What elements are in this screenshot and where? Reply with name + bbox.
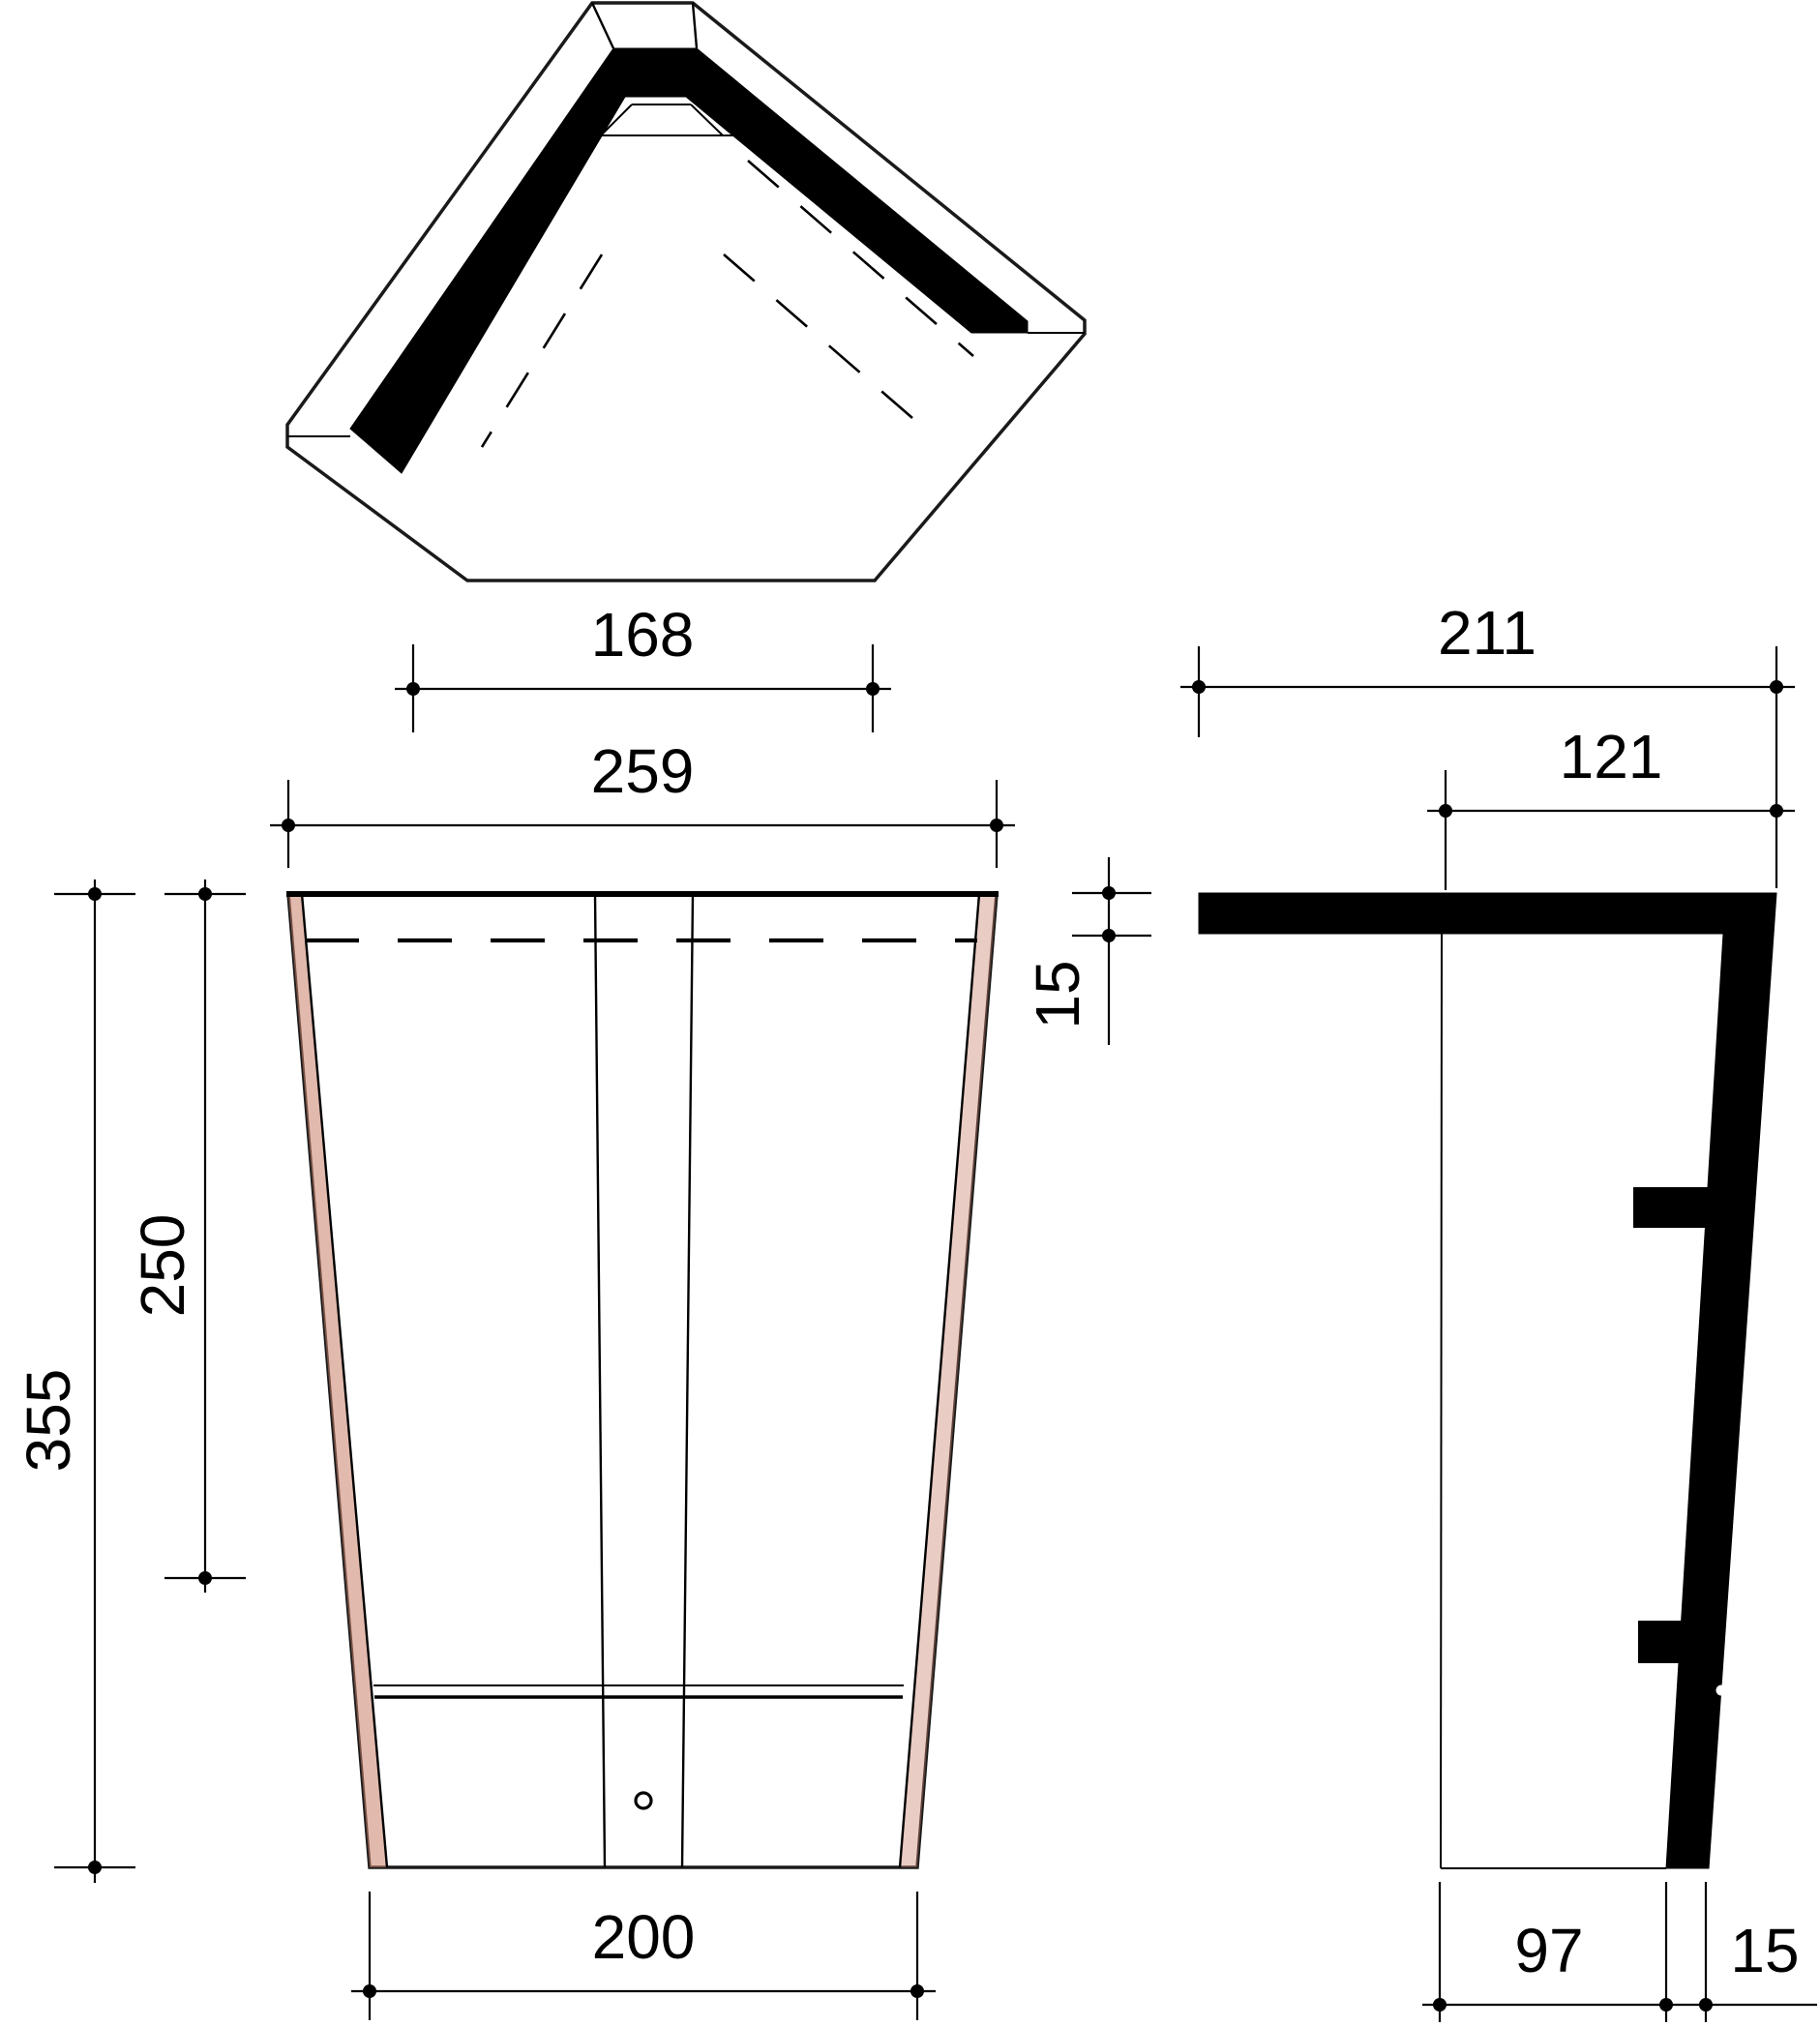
dim-211-dot-left [1192,680,1206,694]
dim-211-dot-right [1770,680,1783,694]
dim-200-label: 200 [592,1902,696,1972]
technical-drawing-page: 168 259 355 250 [0,0,1820,2027]
dim-97-dot-left [1433,1998,1447,2012]
dim-front-bottom-width: 200 [351,1892,936,2020]
dim-200-dot-right [910,1984,924,1998]
top-view-black-ridge-band [350,48,1028,473]
front-view-left-inner-line [302,894,387,1867]
side-view-edge-notch [1716,1685,1727,1696]
dim-259-dot-right [990,819,1003,832]
dim-355-dot-bottom [88,1861,102,1874]
dim-97-dot-right [1659,1998,1673,2012]
dim-211-label: 211 [1438,598,1537,668]
front-view-joint-line-left [595,894,605,1867]
dim-15f-dot-top [1102,886,1116,900]
front-view-nail-hole [636,1793,651,1808]
dim-121-dot-left [1439,804,1452,818]
dim-259-dot-left [282,819,295,832]
dim-259-label: 259 [591,736,695,806]
top-view-apex-trapezoid [592,3,697,48]
side-view-inner-line [1441,934,1442,1868]
dim-side-inner-width: 121 [1427,722,1795,890]
dim-front-head-overlap: 15 [1023,857,1151,1045]
technical-drawing-canvas: 168 259 355 250 [0,0,1820,2027]
dim-15b-dot [1699,1998,1713,2012]
dim-top-width: 168 [395,600,891,732]
front-view-right-edge-shade [900,894,997,1867]
side-view [1199,893,1776,1868]
dim-200-dot-left [363,1984,376,1998]
side-view-upper-nib [1633,1187,1732,1228]
dim-355-dot-top [88,887,102,901]
front-view-left-edge-shade [288,894,387,1867]
dim-15f-dot-bottom [1102,929,1116,942]
side-view-lower-nib [1638,1621,1717,1663]
hidden-edge-right-2 [724,254,912,418]
dim-15f-ticks [1072,893,1151,936]
front-view-joint-line-right [682,894,693,1867]
dim-121-dot-right [1770,804,1783,818]
dim-97-label: 97 [1514,1916,1583,1985]
dim-211-extensions [1199,646,1776,888]
dim-15f-label: 15 [1023,960,1092,1028]
dim-front-height-total: 355 [14,879,135,1883]
front-view [286,894,999,1867]
front-view-right-inner-line [900,894,979,1867]
dim-168-dot-right [866,682,880,696]
side-view-profile [1199,893,1776,1868]
dim-121-label: 121 [1560,722,1663,791]
dim-355-label: 355 [14,1369,83,1473]
dim-250-label: 250 [128,1214,197,1318]
dim-front-height-upper: 250 [128,879,246,1593]
top-view [287,3,1085,581]
dim-250-dot-top [198,887,212,901]
dim-side-top-width: 211 [1180,598,1795,888]
dim-front-top-width: 259 [270,736,1015,868]
dim-250-dot-bottom [198,1571,212,1585]
dim-168-dot-left [406,682,420,696]
dim-168-label: 168 [591,600,695,670]
front-view-tile-face [288,894,997,1867]
dim-15b-label: 15 [1730,1916,1799,1985]
dim-side-bottom: 97 15 [1422,1882,1817,2022]
